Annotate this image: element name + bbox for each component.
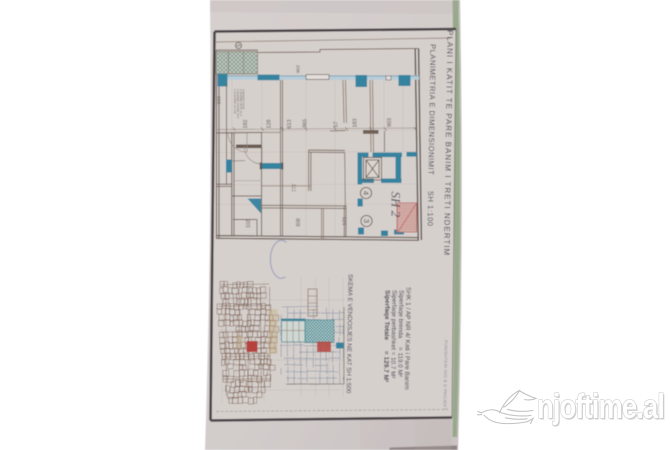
svg-text:777: 777 bbox=[292, 183, 298, 192]
svg-text:4 BANJO 4.8 M: 4 BANJO 4.8 M bbox=[242, 89, 246, 110]
svg-text:57: 57 bbox=[334, 122, 340, 128]
svg-text:903: 903 bbox=[387, 118, 393, 127]
svg-text:808: 808 bbox=[296, 218, 302, 227]
svg-text:182: 182 bbox=[243, 120, 249, 129]
svg-text:128: 128 bbox=[267, 120, 273, 129]
svg-text:5: 5 bbox=[235, 44, 241, 47]
svg-text:160: 160 bbox=[216, 96, 222, 104]
svg-text:3: 3 bbox=[362, 219, 371, 223]
svg-text:183: 183 bbox=[353, 119, 359, 128]
svg-text:njoftime.al: njoftime.al bbox=[537, 387, 664, 425]
svg-text:173: 173 bbox=[343, 217, 349, 226]
svg-text:206: 206 bbox=[295, 65, 301, 73]
svg-text:4: 4 bbox=[362, 191, 371, 195]
svg-text:Siperfaqe Totale = 129.7: Siperfaqe Totale = 129.7 M² bbox=[382, 290, 390, 383]
svg-text:102: 102 bbox=[246, 219, 252, 228]
svg-text:613: 613 bbox=[287, 120, 293, 129]
svg-text:365: 365 bbox=[303, 119, 309, 128]
svg-text:SH 2: SH 2 bbox=[389, 192, 404, 218]
